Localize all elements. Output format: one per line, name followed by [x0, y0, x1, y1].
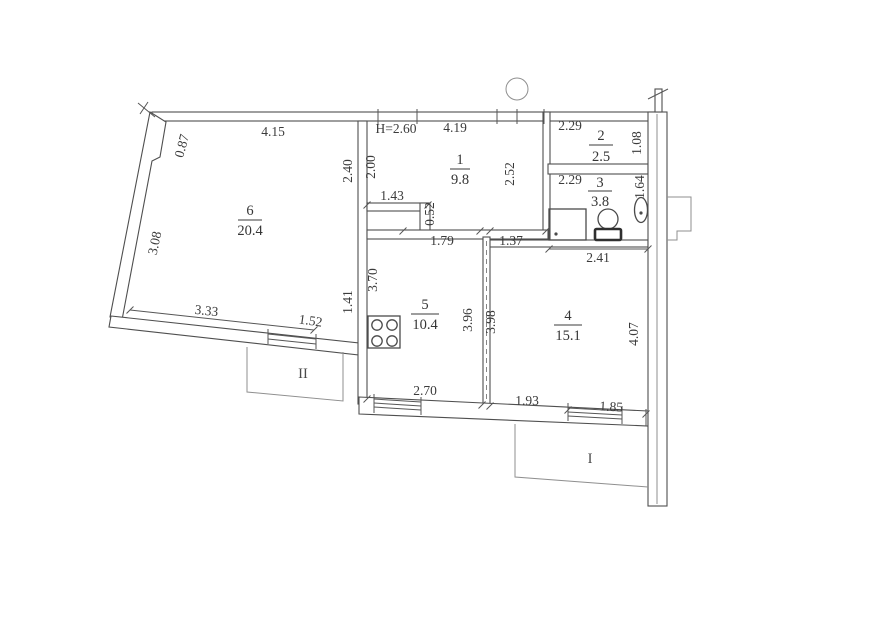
corner-mark-top-left — [138, 102, 155, 117]
windows — [268, 109, 622, 424]
dimension-labels: 4.15 0.87 3.08 3.33 2.40 2.00 H=2.60 4.1… — [145, 118, 647, 415]
room1-area: 9.8 — [451, 172, 469, 188]
room3-area: 3.8 — [591, 194, 609, 210]
dim-room5-left: 3.70 — [365, 268, 380, 292]
shaft-circle-icon — [506, 78, 528, 100]
dim-balcony2-window: 1.52 — [298, 311, 323, 329]
dim-room2-width: 2.29 — [558, 118, 582, 133]
room1-number: 1 — [456, 152, 463, 168]
room4-area: 15.1 — [555, 328, 580, 344]
stove-burner-icon — [387, 336, 397, 346]
dim-room2-depth: 1.08 — [629, 131, 644, 155]
room6-area: 20.4 — [237, 223, 263, 239]
room2-area: 2.5 — [592, 149, 610, 165]
room4-number: 4 — [564, 308, 572, 324]
dim-room3-width: 2.29 — [558, 172, 582, 187]
room5-area: 10.4 — [412, 317, 438, 333]
shower-drain-icon — [554, 232, 557, 235]
wall-left-slanted — [110, 112, 166, 320]
floor-plan-page: 4.15 0.87 3.08 3.33 2.40 2.00 H=2.60 4.1… — [0, 0, 890, 631]
balcony-2-label: II — [298, 366, 308, 382]
room6-number: 6 — [246, 203, 253, 219]
dim-room1-right: 2.52 — [502, 162, 517, 186]
stove-burner-icon — [387, 320, 397, 330]
shower-tray-icon — [549, 209, 586, 240]
balcony-2-outline — [247, 347, 343, 401]
wall-right-bump-outline — [667, 197, 691, 240]
dim-room4-right: 4.07 — [626, 322, 641, 346]
dim-room1-top: 4.19 — [443, 120, 467, 135]
balcony-1-label: I — [588, 451, 593, 467]
dim-room6-upper-left: 0.87 — [171, 132, 192, 159]
dim-room4-bottom-right: 1.85 — [599, 398, 624, 414]
wall-hall-step-horizontal — [367, 203, 428, 211]
dim-room4-left: 3.98 — [483, 310, 498, 334]
dim-room6-top: 4.15 — [261, 124, 285, 139]
stove-burner-icon — [372, 320, 382, 330]
floor-plan-drawing: 4.15 0.87 3.08 3.33 2.40 2.00 H=2.60 4.1… — [0, 0, 890, 631]
dim-room5-top: 1.79 — [430, 233, 454, 248]
dim-hall-step-depth: 0.52 — [422, 202, 437, 226]
dim-room4-top-left: 1.37 — [499, 233, 523, 248]
room5-number: 5 — [421, 297, 428, 313]
dim-room6-left: 3.08 — [145, 230, 165, 256]
dim-room6-right-lower: 1.41 — [340, 290, 355, 314]
dim-room4-bottom-left: 1.93 — [515, 393, 539, 408]
dim-room1-left: 2.00 — [363, 155, 378, 179]
toilet-bowl-icon — [598, 209, 618, 229]
dim-room3-depth: 1.64 — [632, 175, 647, 199]
balcony-1-outline — [515, 424, 648, 487]
dim-room5-right: 3.96 — [460, 308, 475, 332]
dim-room4-top: 2.41 — [586, 250, 610, 265]
room3-number: 3 — [596, 175, 603, 191]
dim-room6-bottom: 3.33 — [194, 302, 219, 319]
sink-icon — [635, 198, 648, 223]
toilet-tank-icon — [595, 229, 621, 240]
sink-drain-icon — [639, 211, 642, 214]
room2-number: 2 — [597, 128, 604, 144]
ceiling-height-label: H=2.60 — [376, 121, 417, 136]
dim-hall-step-width: 1.43 — [380, 188, 404, 203]
stove-burner-icon — [372, 336, 382, 346]
dim-room6-right: 2.40 — [340, 159, 355, 183]
dim-room5-bottom: 2.70 — [413, 383, 437, 398]
